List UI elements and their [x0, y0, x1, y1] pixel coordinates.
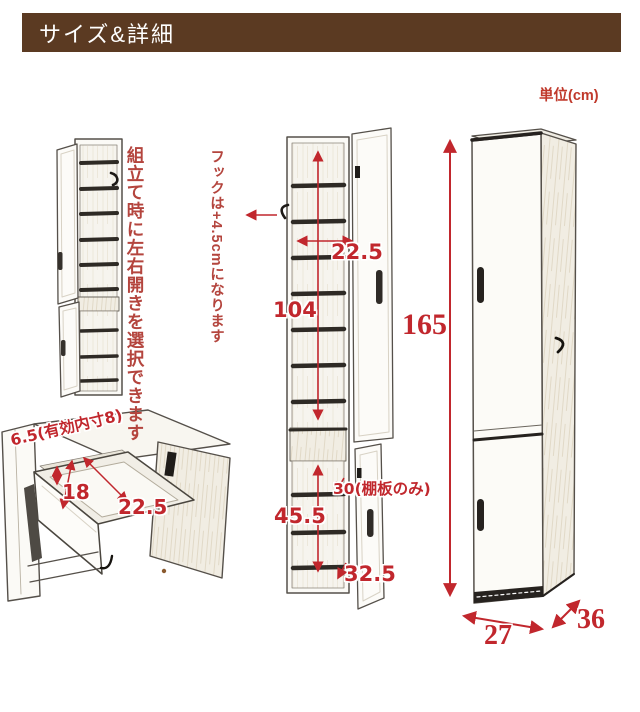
dim-lower-height: 45.5 — [274, 504, 326, 528]
hook-icon — [101, 556, 112, 568]
dim-body-width: 27 — [484, 620, 512, 652]
dim-body-depth: 36 — [577, 604, 605, 636]
right-cabinet-closed-illustration — [472, 129, 576, 603]
dim-total-height: 165 — [402, 308, 447, 342]
dim-arrow-36 — [553, 601, 579, 627]
note-hook-height: フックは+4.5cmになります — [206, 149, 227, 349]
dim-upper-height: 104 — [273, 298, 317, 322]
unit-label: 単位(cm) — [539, 84, 599, 105]
dim-drawer-width: 18 — [62, 480, 90, 504]
cabinet-illustrations — [0, 0, 640, 712]
dim-mid-shelf-width: 22.5 — [331, 240, 383, 264]
page-title: サイズ&詳細 — [22, 17, 175, 49]
section-header: サイズ&詳細 — [22, 13, 621, 52]
size-detail-infographic: サイズ&詳細 単位(cm) 組立て時に左右開きを選択できます フックは+4.5c… — [0, 0, 640, 712]
dim-shelf-board-note: 30(棚板のみ) — [333, 477, 431, 499]
left-cabinet-open-illustration — [57, 139, 122, 397]
middle-cabinet-open-illustration — [282, 128, 393, 609]
note-assembly-direction: 組立て時に左右開きを選択できます — [123, 146, 148, 382]
dim-bottom-width: 32.5 — [344, 562, 396, 586]
dim-drawer-depth: 22.5 — [118, 495, 167, 519]
